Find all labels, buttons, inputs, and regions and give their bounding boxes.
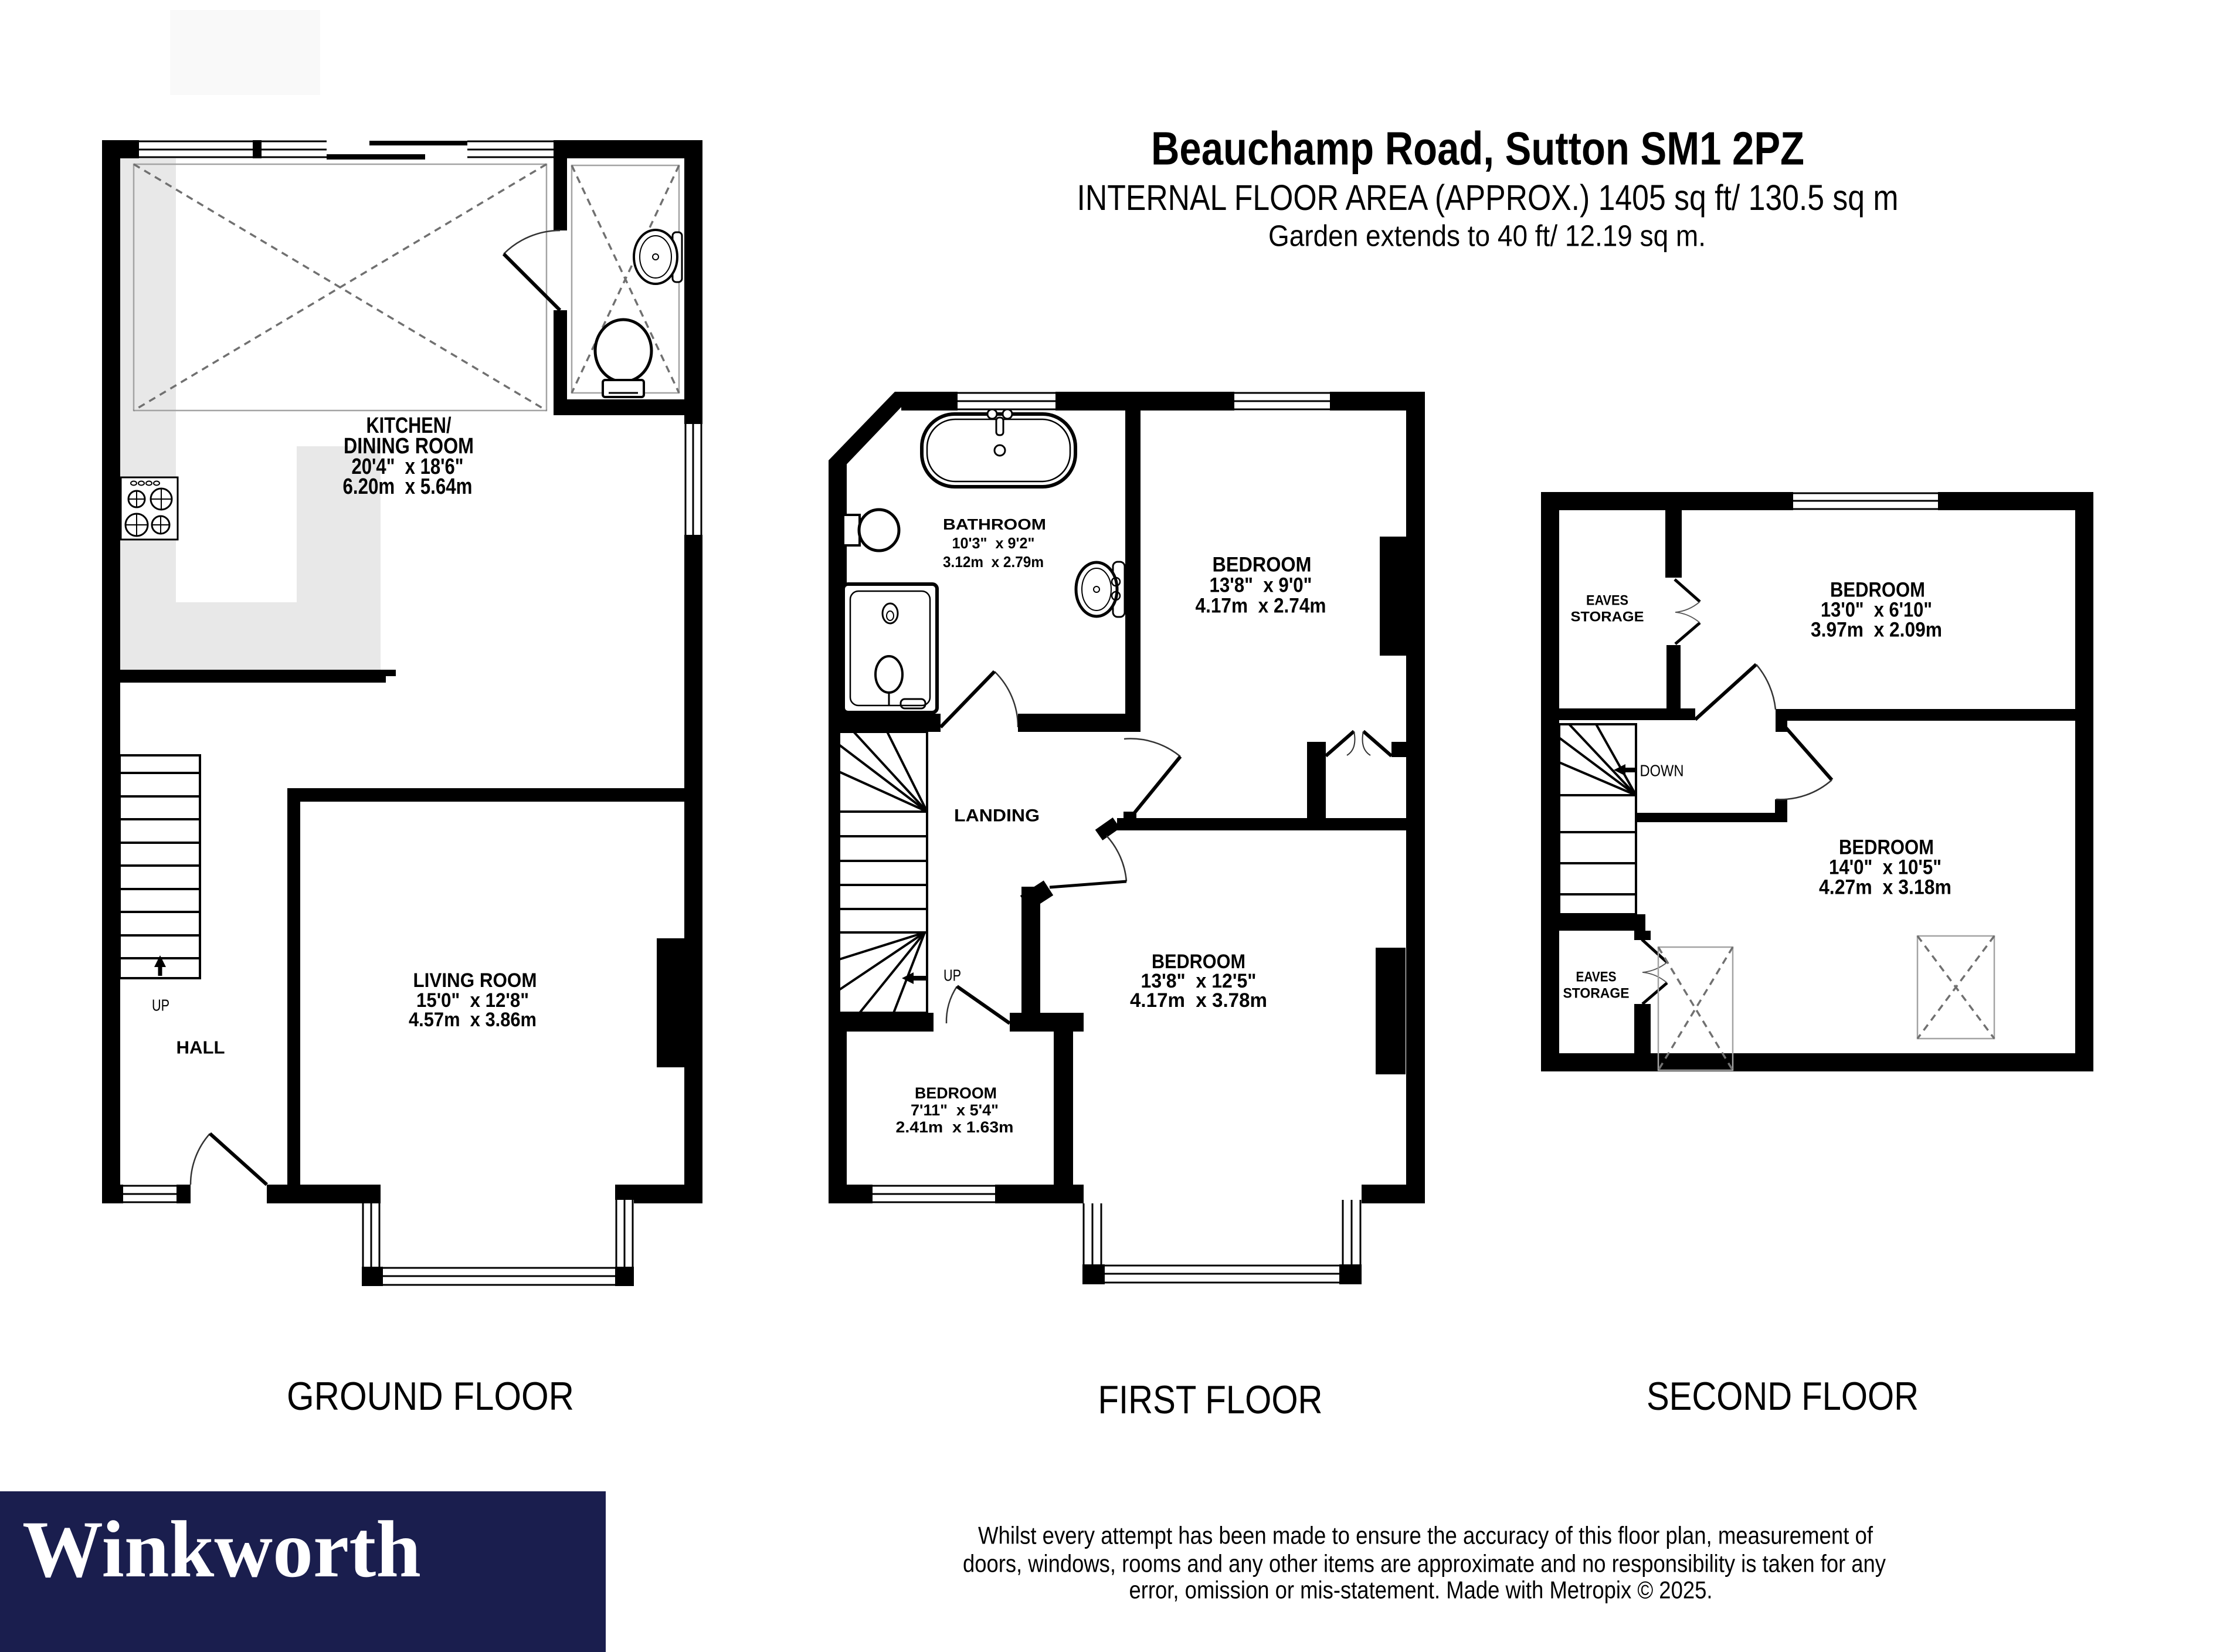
svg-text:4.27m x 3.18m: 4.27m x 3.18m	[1819, 876, 1951, 899]
svg-text:Beauchamp Road, Sutton SM1 2PZ: Beauchamp Road, Sutton SM1 2PZ	[1151, 123, 1804, 175]
svg-text:3.12m x 2.79m: 3.12m x 2.79m	[943, 553, 1044, 571]
svg-text:HALL: HALL	[177, 1037, 225, 1058]
svg-text:BEDROOM: BEDROOM	[915, 1084, 997, 1102]
svg-text:EAVES: EAVES	[1586, 593, 1628, 609]
svg-text:Garden extends to 40 ft/ 12.19: Garden extends to 40 ft/ 12.19 sq m.	[1268, 219, 1706, 253]
svg-text:error, omission or mis-stateme: error, omission or mis-statement. Made w…	[1129, 1576, 1713, 1604]
svg-text:2.41m x 1.63m: 2.41m x 1.63m	[896, 1118, 1014, 1136]
svg-text:STORAGE: STORAGE	[1571, 609, 1644, 625]
svg-text:LANDING: LANDING	[954, 806, 1040, 826]
svg-text:SECOND FLOOR: SECOND FLOOR	[1647, 1374, 1919, 1419]
svg-text:4.17m x 3.78m: 4.17m x 3.78m	[1130, 989, 1267, 1012]
svg-text:doors, windows, rooms and any: doors, windows, rooms and any other item…	[963, 1550, 1886, 1578]
svg-text:GROUND FLOOR: GROUND FLOOR	[287, 1374, 574, 1419]
svg-text:4.57m x 3.86m: 4.57m x 3.86m	[409, 1009, 537, 1031]
svg-text:UP: UP	[943, 966, 961, 985]
svg-text:4.17m x 2.74m: 4.17m x 2.74m	[1196, 595, 1326, 618]
svg-text:3.97m x 2.09m: 3.97m x 2.09m	[1811, 619, 1942, 642]
svg-text:UP: UP	[152, 996, 169, 1015]
svg-text:6.20m x 5.64m: 6.20m x 5.64m	[343, 474, 473, 499]
svg-text:INTERNAL FLOOR AREA (APPROX.): INTERNAL FLOOR AREA (APPROX.) 1405 sq ft…	[1077, 178, 1899, 218]
svg-text:Winkworth: Winkworth	[22, 1504, 421, 1594]
svg-text:DOWN: DOWN	[1640, 762, 1684, 780]
svg-text:7'11" x 5'4": 7'11" x 5'4"	[911, 1101, 999, 1119]
svg-text:BATHROOM: BATHROOM	[943, 515, 1046, 533]
svg-text:Whilst every attempt has been: Whilst every attempt has been made to en…	[978, 1522, 1873, 1549]
svg-text:10'3" x 9'2": 10'3" x 9'2"	[952, 534, 1035, 552]
svg-text:FIRST FLOOR: FIRST FLOOR	[1098, 1378, 1323, 1422]
svg-text:STORAGE: STORAGE	[1563, 986, 1630, 1002]
svg-text:EAVES: EAVES	[1576, 969, 1617, 985]
svg-text:LIVING ROOM: LIVING ROOM	[413, 969, 537, 992]
svg-text:BEDROOM: BEDROOM	[1213, 554, 1312, 576]
svg-text:13'8" x 9'0": 13'8" x 9'0"	[1210, 574, 1312, 597]
